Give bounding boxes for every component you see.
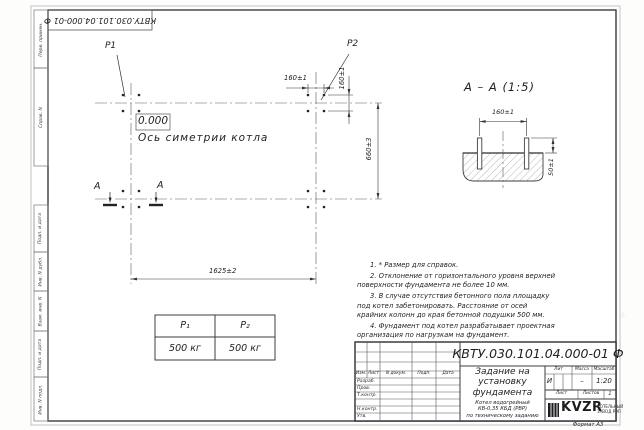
tb-row-tkontr: Т.контр.	[357, 393, 377, 398]
margin-label-text: Инв. N дубл.	[39, 256, 44, 286]
tb-header-docnum: N докум.	[380, 371, 412, 378]
section-letter-left: А	[94, 182, 101, 192]
section-dim-50: 50±1	[544, 156, 560, 178]
title-block-subtitle: Котел водогрейный КВ-0,35 КБД (РВР) по т…	[460, 399, 545, 420]
plan-dim-660: 660±3	[362, 135, 378, 163]
drawing-sheet: kotel-kv.ru kotel-kv.ru kotel-kv.ru kote…	[0, 0, 644, 430]
plan-elevation-value: 0.000	[136, 114, 170, 130]
tb-row-utv: Утв.	[357, 414, 367, 419]
plan-p2-label: P2	[347, 40, 358, 50]
margin-label-sprav-n: Справ. N	[34, 68, 48, 166]
section-dim-160: 160±1	[492, 109, 514, 116]
margin-label-text: Взам. инв. N	[39, 296, 44, 326]
margin-label-podp-data-2: Подп. и дата	[34, 331, 48, 377]
load-table-value-p1: 500 кг	[155, 339, 215, 359]
plan-dim-160-top: 160±1	[284, 75, 307, 82]
tb-lit-value: И	[545, 374, 554, 390]
tb-scale-header: Масштаб	[592, 366, 616, 374]
margin-label-inv-dubl: Инв. N дубл.	[34, 252, 48, 291]
margin-label-podp-data-1: Подп. и дата	[34, 205, 48, 252]
tb-row-prov: Пров.	[357, 386, 370, 391]
section-letter-right: А	[157, 181, 164, 191]
title-block-title: Задание на установку фундамента	[460, 367, 545, 398]
margin-label-text: Справ. N	[39, 106, 44, 127]
note-4: 4. Фундамент под котел разрабатывает про…	[357, 322, 559, 341]
tb-mass-header: Масса	[572, 366, 592, 374]
tb-sheets-value: 1	[604, 390, 616, 399]
load-table-header-p1: P₁	[155, 316, 215, 336]
tb-scale-value: 1:20	[592, 374, 616, 390]
margin-label-vzam-inv: Взам. инв. N	[34, 291, 48, 331]
tb-header-data: Дата	[436, 371, 460, 378]
title-block-doc-number: КВТУ.030.101.04.000-01 Ф	[460, 344, 616, 364]
notes-block: 1. * Размер для справок. 2. Отклонение о…	[357, 261, 559, 342]
tb-row-nkontr: Н.контр.	[357, 407, 378, 412]
tb-logo-caption: КОТЕЛЬНЫЙ ЗАВОД РЭП	[597, 404, 623, 414]
corner-doc-number: КВТУ.030.101.04.000-01 Ф	[48, 10, 152, 30]
kvzr-logo-icon	[548, 403, 559, 417]
section-title: А – А (1:5)	[464, 81, 535, 94]
load-table-header-p2: P₂	[215, 316, 275, 336]
tb-header-podp: Подп.	[412, 371, 436, 378]
plan-dim-1625: 1625±2	[209, 268, 236, 275]
plan-axis-label: Ось симетрии котла	[138, 133, 268, 145]
plan-dim-160-side: 160±1	[335, 65, 351, 91]
tb-header-list: Лист	[367, 371, 380, 378]
tb-row-razrab: Разраб.	[357, 379, 375, 384]
margin-label-inv-podl: Инв. N подл.	[34, 377, 48, 421]
tb-sheets-label: Листов	[578, 390, 604, 399]
tb-sheet-label: Лист	[545, 390, 578, 399]
margin-label-perv-primen: Перв. примен.	[34, 10, 48, 68]
note-3: 3. В случае отсутствия бетонного пола пл…	[357, 292, 559, 321]
tb-lit-header: Лит	[545, 366, 572, 374]
note-1: 1. * Размер для справок.	[357, 261, 559, 271]
margin-label-text: Перв. примен.	[39, 22, 44, 57]
tb-mass-value: –	[572, 374, 592, 390]
load-table-value-p2: 500 кг	[215, 339, 275, 359]
margin-label-text: Подп. и дата	[39, 213, 44, 244]
tb-header-izm: Изм.	[355, 371, 367, 378]
margin-label-text: Инв. N подл.	[39, 384, 44, 414]
margin-label-text: Подп. и дата	[39, 338, 44, 369]
tb-format-label: Формат А3	[558, 422, 618, 430]
note-2: 2. Отклонение от горизонтального уровня …	[357, 272, 559, 291]
plan-p1-label: P1	[105, 42, 116, 52]
